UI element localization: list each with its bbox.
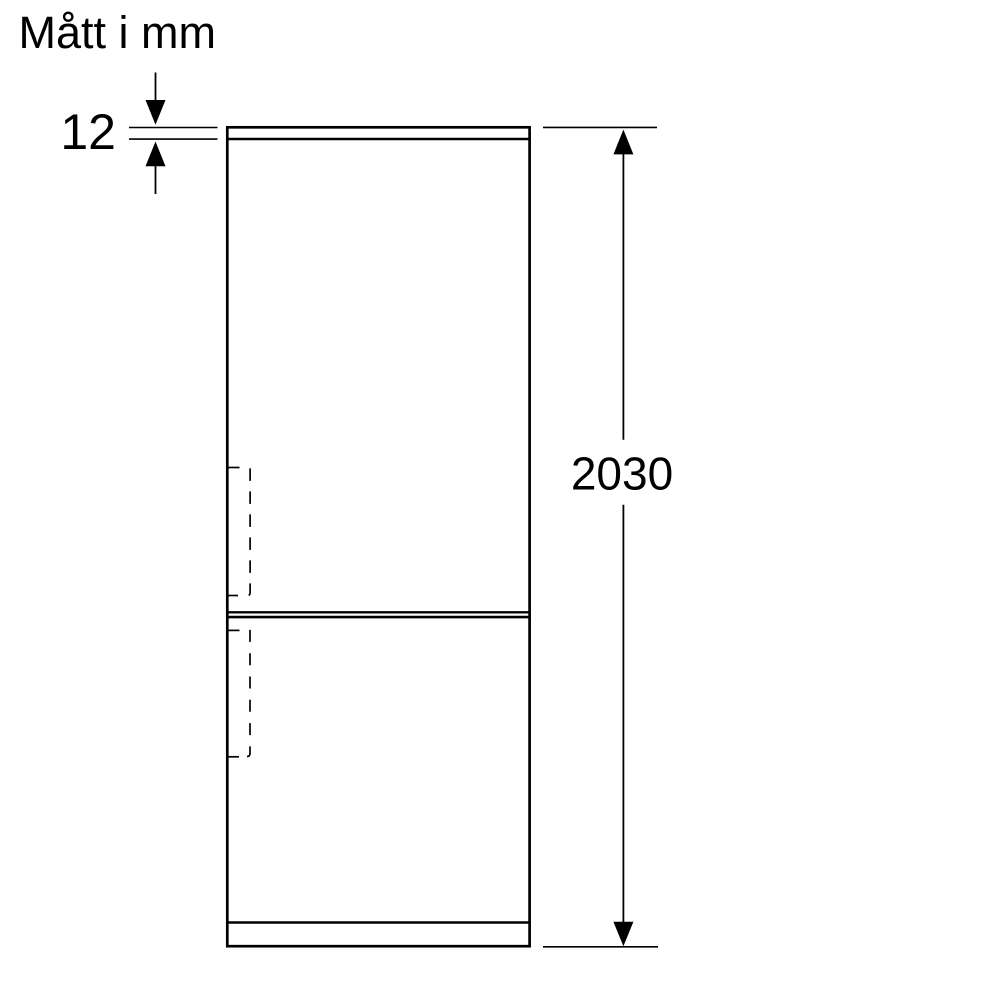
svg-text:Mått i mm: Mått i mm: [19, 7, 217, 58]
svg-text:2030: 2030: [571, 447, 673, 499]
svg-text:12: 12: [60, 104, 116, 160]
